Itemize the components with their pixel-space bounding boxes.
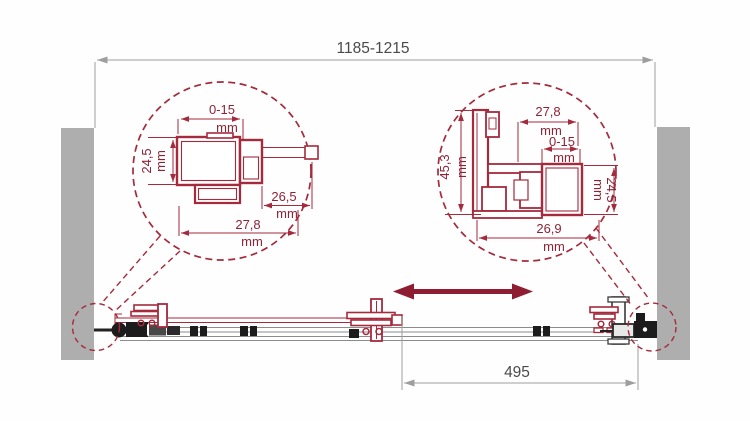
right-wall <box>657 127 690 360</box>
profile-block <box>126 322 148 337</box>
right-right-value: 24,5 <box>604 177 619 202</box>
right-right-unit: mm <box>591 179 606 201</box>
clamp-jaw <box>543 326 550 336</box>
screw-hole <box>643 327 647 331</box>
travel-value: 495 <box>504 364 530 381</box>
left-top-unit: mm <box>216 120 238 135</box>
bracket-flange <box>608 297 629 302</box>
adjuster-sleeve <box>613 324 634 337</box>
profile-hook-slot <box>489 118 496 129</box>
bracket-flange <box>608 339 629 344</box>
right-side-unit: mm <box>454 156 469 178</box>
shower-door-technical-drawing: 1185-1215 <box>0 0 750 421</box>
roller-plate <box>347 313 395 319</box>
profile-box <box>542 164 582 215</box>
clamp-jaw <box>533 326 541 336</box>
right-adjust-value: 0-15 <box>549 134 575 149</box>
left-inner-value: 26,5 <box>271 189 296 204</box>
left-inner-unit: mm <box>276 206 298 221</box>
right-bottom-unit: mm <box>543 239 565 254</box>
clamp-jaw <box>200 326 207 336</box>
right-bottom-value: 26,9 <box>536 221 561 236</box>
left-top-value: 0-15 <box>209 102 235 117</box>
clamp-jaw <box>190 326 198 336</box>
right-top-value: 27,8 <box>535 104 560 119</box>
left-side-value: 24,5 <box>139 148 154 173</box>
roller-plate <box>351 320 391 326</box>
profile-lower-box <box>482 187 506 211</box>
left-wall <box>61 128 94 360</box>
clamp-jaw <box>250 326 257 336</box>
left-bottom-value: 27,8 <box>235 217 260 232</box>
profile-foot <box>195 185 240 203</box>
roller-plate <box>594 314 615 319</box>
profile-channel-notch <box>514 180 528 200</box>
right-adjust-unit: mm <box>553 150 575 165</box>
left-bottom-unit: mm <box>241 234 263 249</box>
overall-width-value: 1185-1215 <box>337 40 410 57</box>
roller-plate <box>590 307 618 313</box>
stopper-block <box>349 329 359 338</box>
rail-section-cap <box>305 146 318 159</box>
roller-bracket <box>158 304 167 327</box>
profile-outer <box>177 137 240 185</box>
profile-slit <box>147 325 149 336</box>
profile-bottom-arm <box>473 211 542 218</box>
clamp-jaw <box>240 326 248 336</box>
profile-block <box>167 326 180 335</box>
drawing-canvas: 1185-1215 <box>0 0 750 421</box>
profile-block <box>636 313 645 321</box>
right-side-value: 45,3 <box>437 154 452 179</box>
left-side-unit: mm <box>153 150 168 172</box>
rail-end-cap <box>392 315 402 325</box>
